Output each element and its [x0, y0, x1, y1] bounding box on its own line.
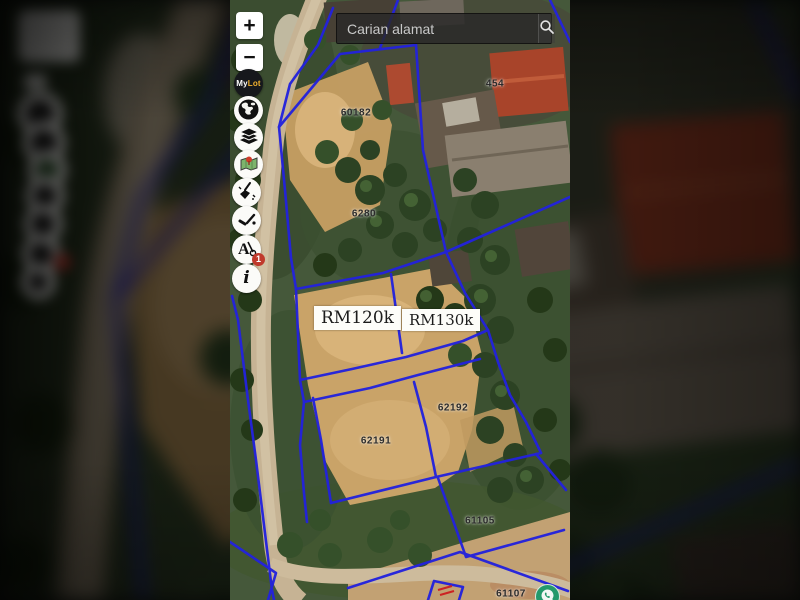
mylot-button[interactable]: MyLot	[234, 69, 263, 98]
measure-icon	[236, 208, 258, 233]
search-bar	[336, 13, 552, 44]
info-icon: i	[243, 270, 249, 287]
screenshot-root: 60182 454 6280 62192 62191 61105 61107 R…	[0, 0, 800, 600]
price-marker-rm120k[interactable]: RM120k	[314, 306, 401, 330]
notification-badge: 1	[252, 253, 265, 266]
layers-icon	[238, 125, 260, 150]
parcel-label: 454	[486, 79, 504, 90]
clear-map-button[interactable]	[232, 178, 261, 207]
broom-icon	[236, 180, 258, 205]
measure-button[interactable]	[232, 206, 261, 235]
mylot-logo: MyLot	[236, 79, 261, 88]
locate-parcel-button[interactable]	[234, 150, 263, 179]
layers-button[interactable]	[234, 123, 263, 152]
zoom-out-button[interactable]: −	[236, 44, 263, 71]
parcel-label: 60182	[341, 108, 371, 119]
globe-icon	[237, 98, 260, 124]
zoom-in-button[interactable]: +	[236, 12, 263, 39]
map-marker-icon	[238, 152, 260, 177]
search-icon	[539, 19, 555, 38]
parcel-label: 62192	[438, 403, 468, 414]
parcel-label: 61105	[465, 516, 495, 527]
parcel-label: 62191	[361, 436, 391, 447]
satellite-map-view[interactable]	[230, 0, 570, 600]
parcel-label: 6280	[352, 209, 376, 220]
search-input[interactable]	[337, 14, 538, 43]
basemap-button[interactable]	[234, 96, 263, 125]
map-panel: 60182 454 6280 62192 62191 61105 61107 R…	[230, 0, 570, 600]
annotate-button[interactable]: A 1	[232, 235, 261, 264]
search-button[interactable]	[538, 14, 555, 43]
parcel-label: 61107	[496, 589, 526, 600]
whatsapp-icon	[540, 588, 555, 600]
price-marker-rm130k[interactable]: RM130k	[402, 309, 480, 331]
info-button[interactable]: i	[232, 264, 261, 293]
